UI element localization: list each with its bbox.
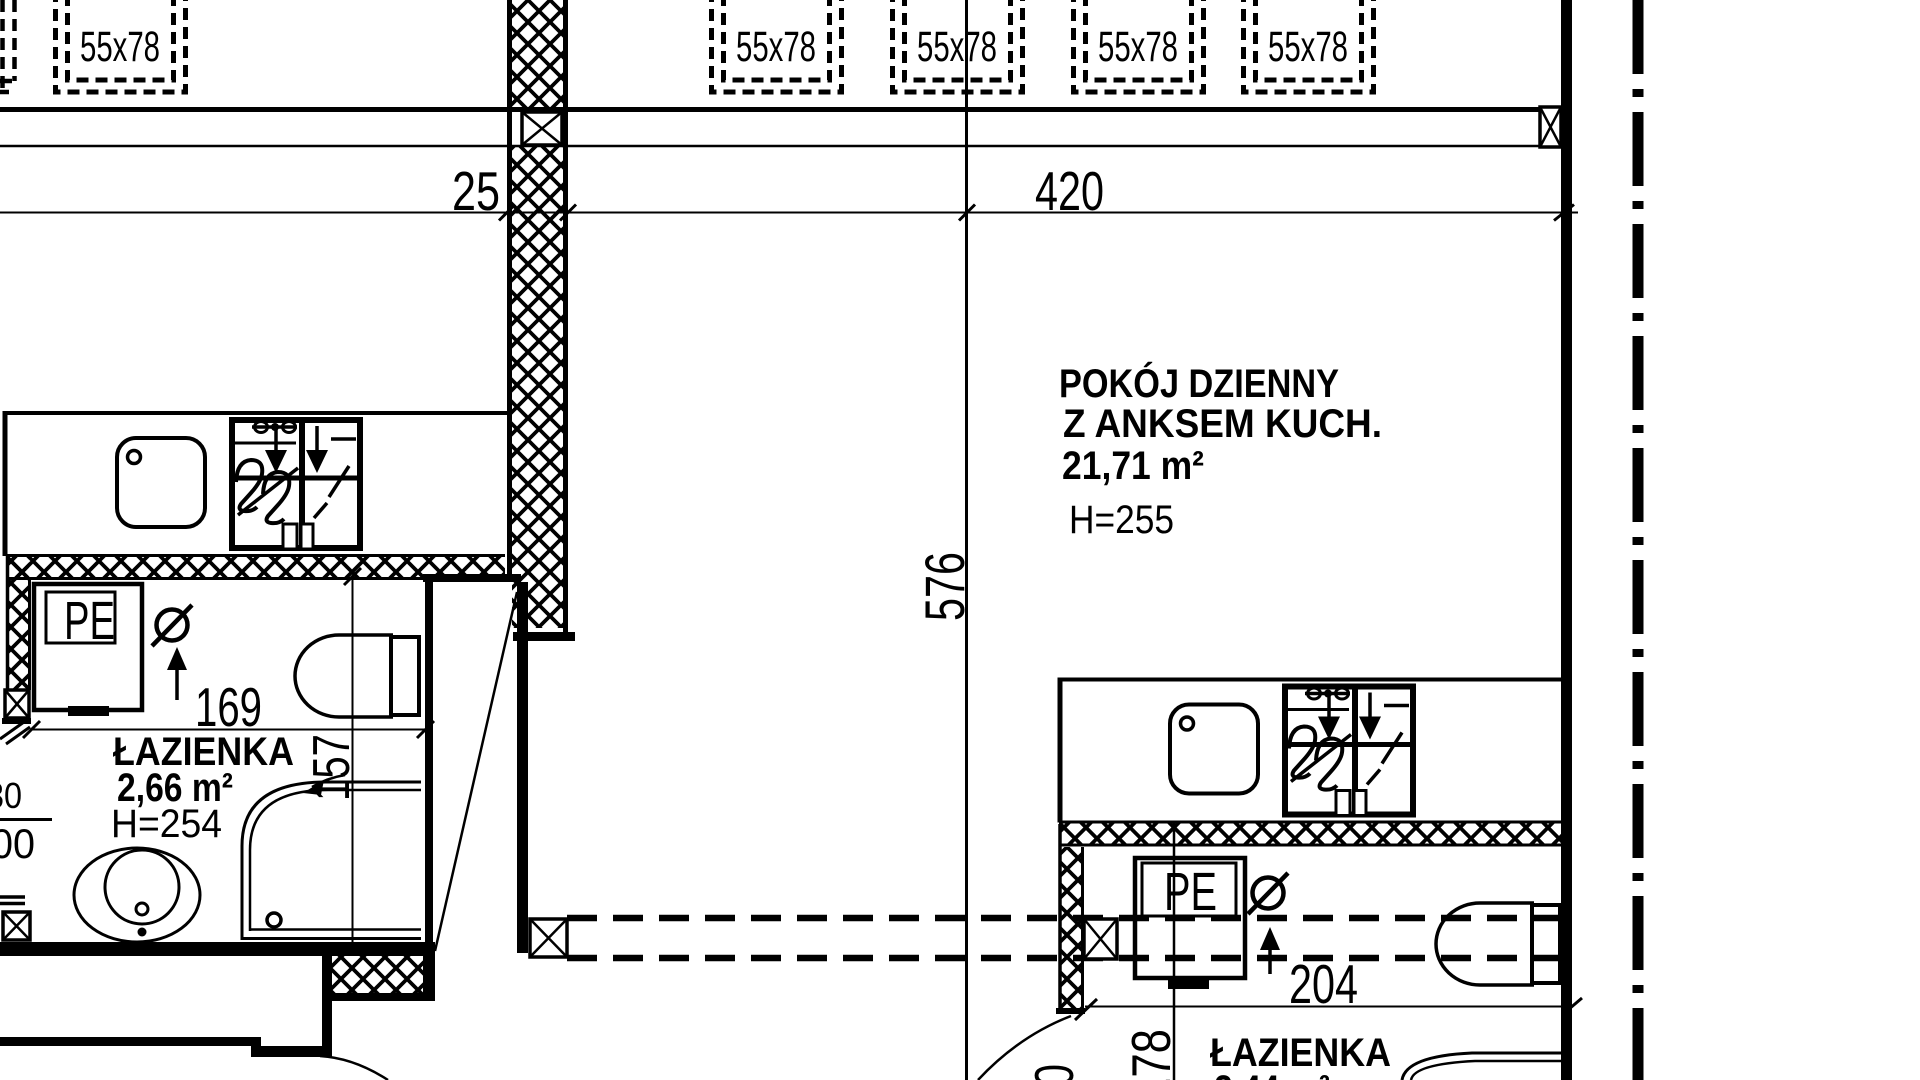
svg-text:Z ANKSEM KUCH.: Z ANKSEM KUCH.	[1063, 402, 1382, 446]
svg-text:00: 00	[0, 820, 35, 867]
svg-text:80: 80	[1023, 1064, 1085, 1080]
svg-text:55x78: 55x78	[1268, 23, 1348, 71]
svg-text:204: 204	[1289, 953, 1358, 1015]
svg-text:PE: PE	[64, 591, 115, 651]
svg-text:169: 169	[195, 676, 262, 738]
svg-text:PE: PE	[1164, 862, 1217, 922]
svg-text:30: 30	[0, 775, 22, 816]
svg-text:2,44 m²: 2,44 m²	[1214, 1068, 1330, 1080]
svg-text:H=255: H=255	[1069, 498, 1174, 542]
svg-text:25: 25	[452, 160, 500, 222]
svg-text:55x78: 55x78	[80, 23, 160, 71]
svg-text:178: 178	[1120, 1029, 1182, 1080]
svg-text:420: 420	[1035, 160, 1104, 222]
svg-text:55x78: 55x78	[917, 23, 997, 71]
svg-text:576: 576	[913, 552, 976, 621]
svg-text:POKÓJ DZIENNY: POKÓJ DZIENNY	[1059, 360, 1339, 406]
svg-text:55x78: 55x78	[1098, 23, 1178, 71]
svg-text:55x78: 55x78	[736, 23, 816, 71]
svg-text:21,71 m²: 21,71 m²	[1062, 444, 1204, 488]
svg-text:H=254: H=254	[111, 802, 222, 846]
